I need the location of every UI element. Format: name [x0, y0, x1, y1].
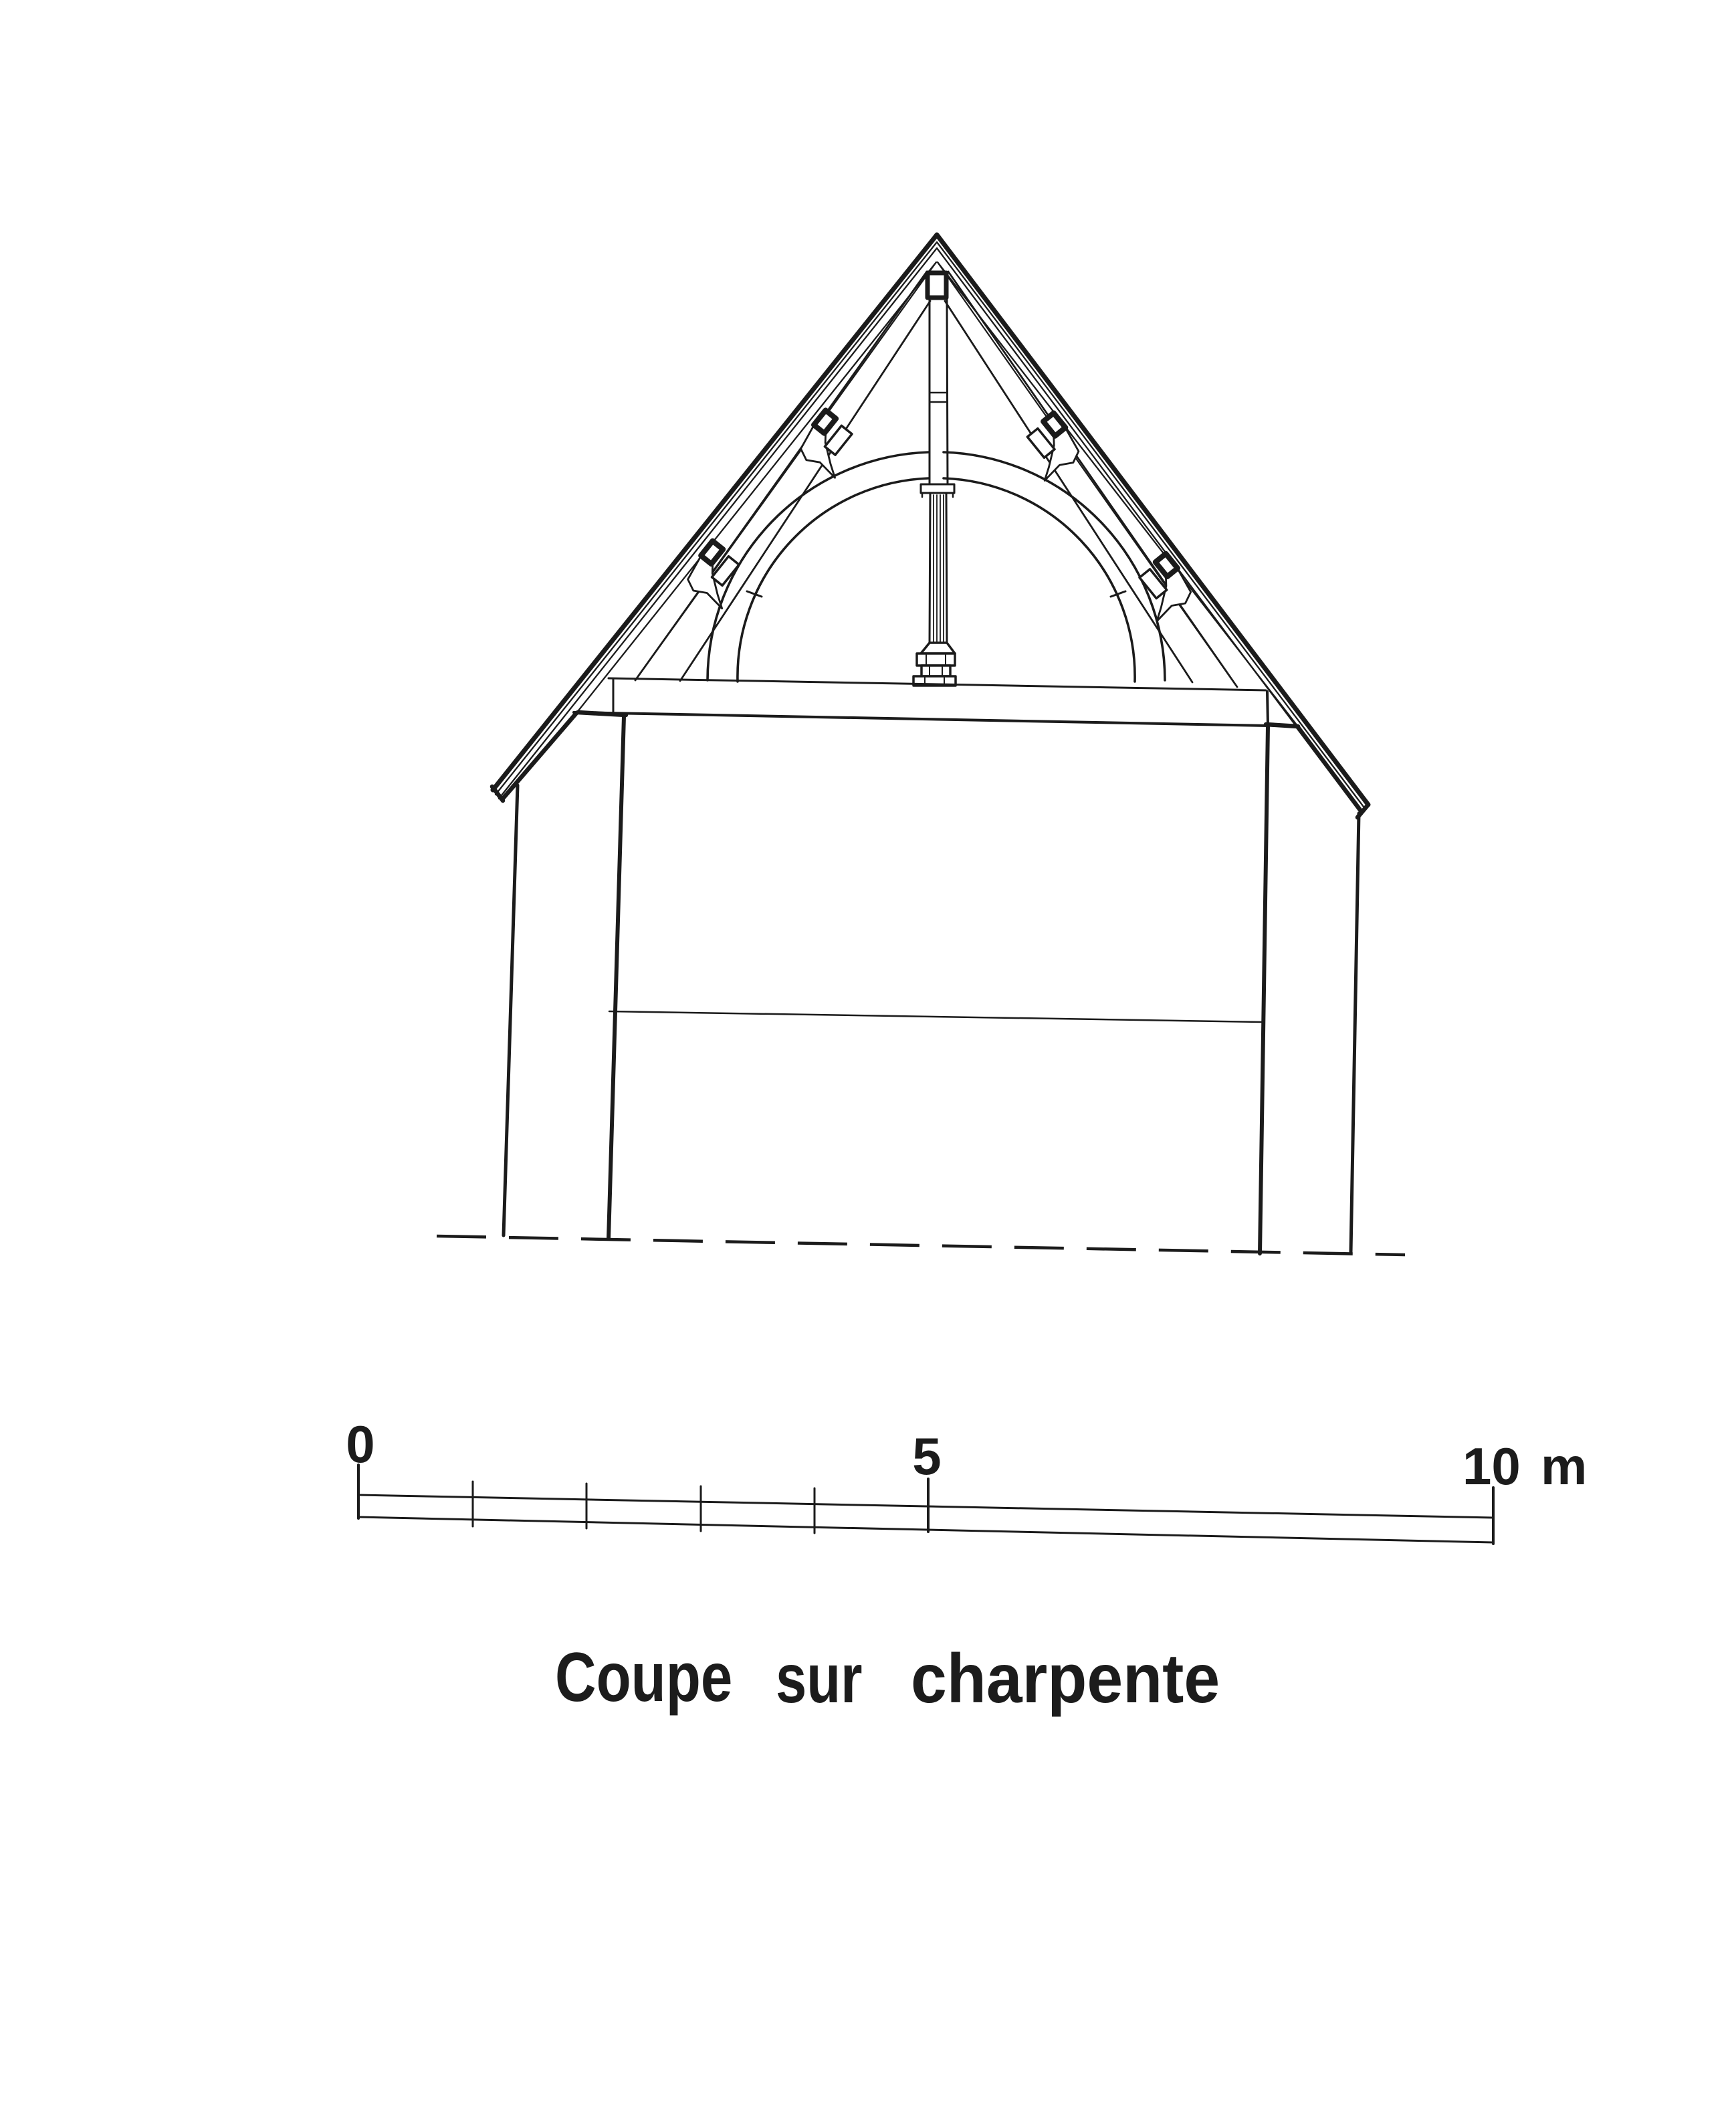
svg-text:5: 5 [912, 1427, 941, 1486]
svg-text:sur: sur [776, 1639, 862, 1717]
svg-text:10: 10 [1462, 1437, 1521, 1496]
svg-text:charpente: charpente [911, 1640, 1220, 1718]
svg-text:m: m [1541, 1437, 1587, 1496]
svg-text:Coupe: Coupe [555, 1639, 732, 1716]
svg-text:0: 0 [346, 1415, 374, 1474]
